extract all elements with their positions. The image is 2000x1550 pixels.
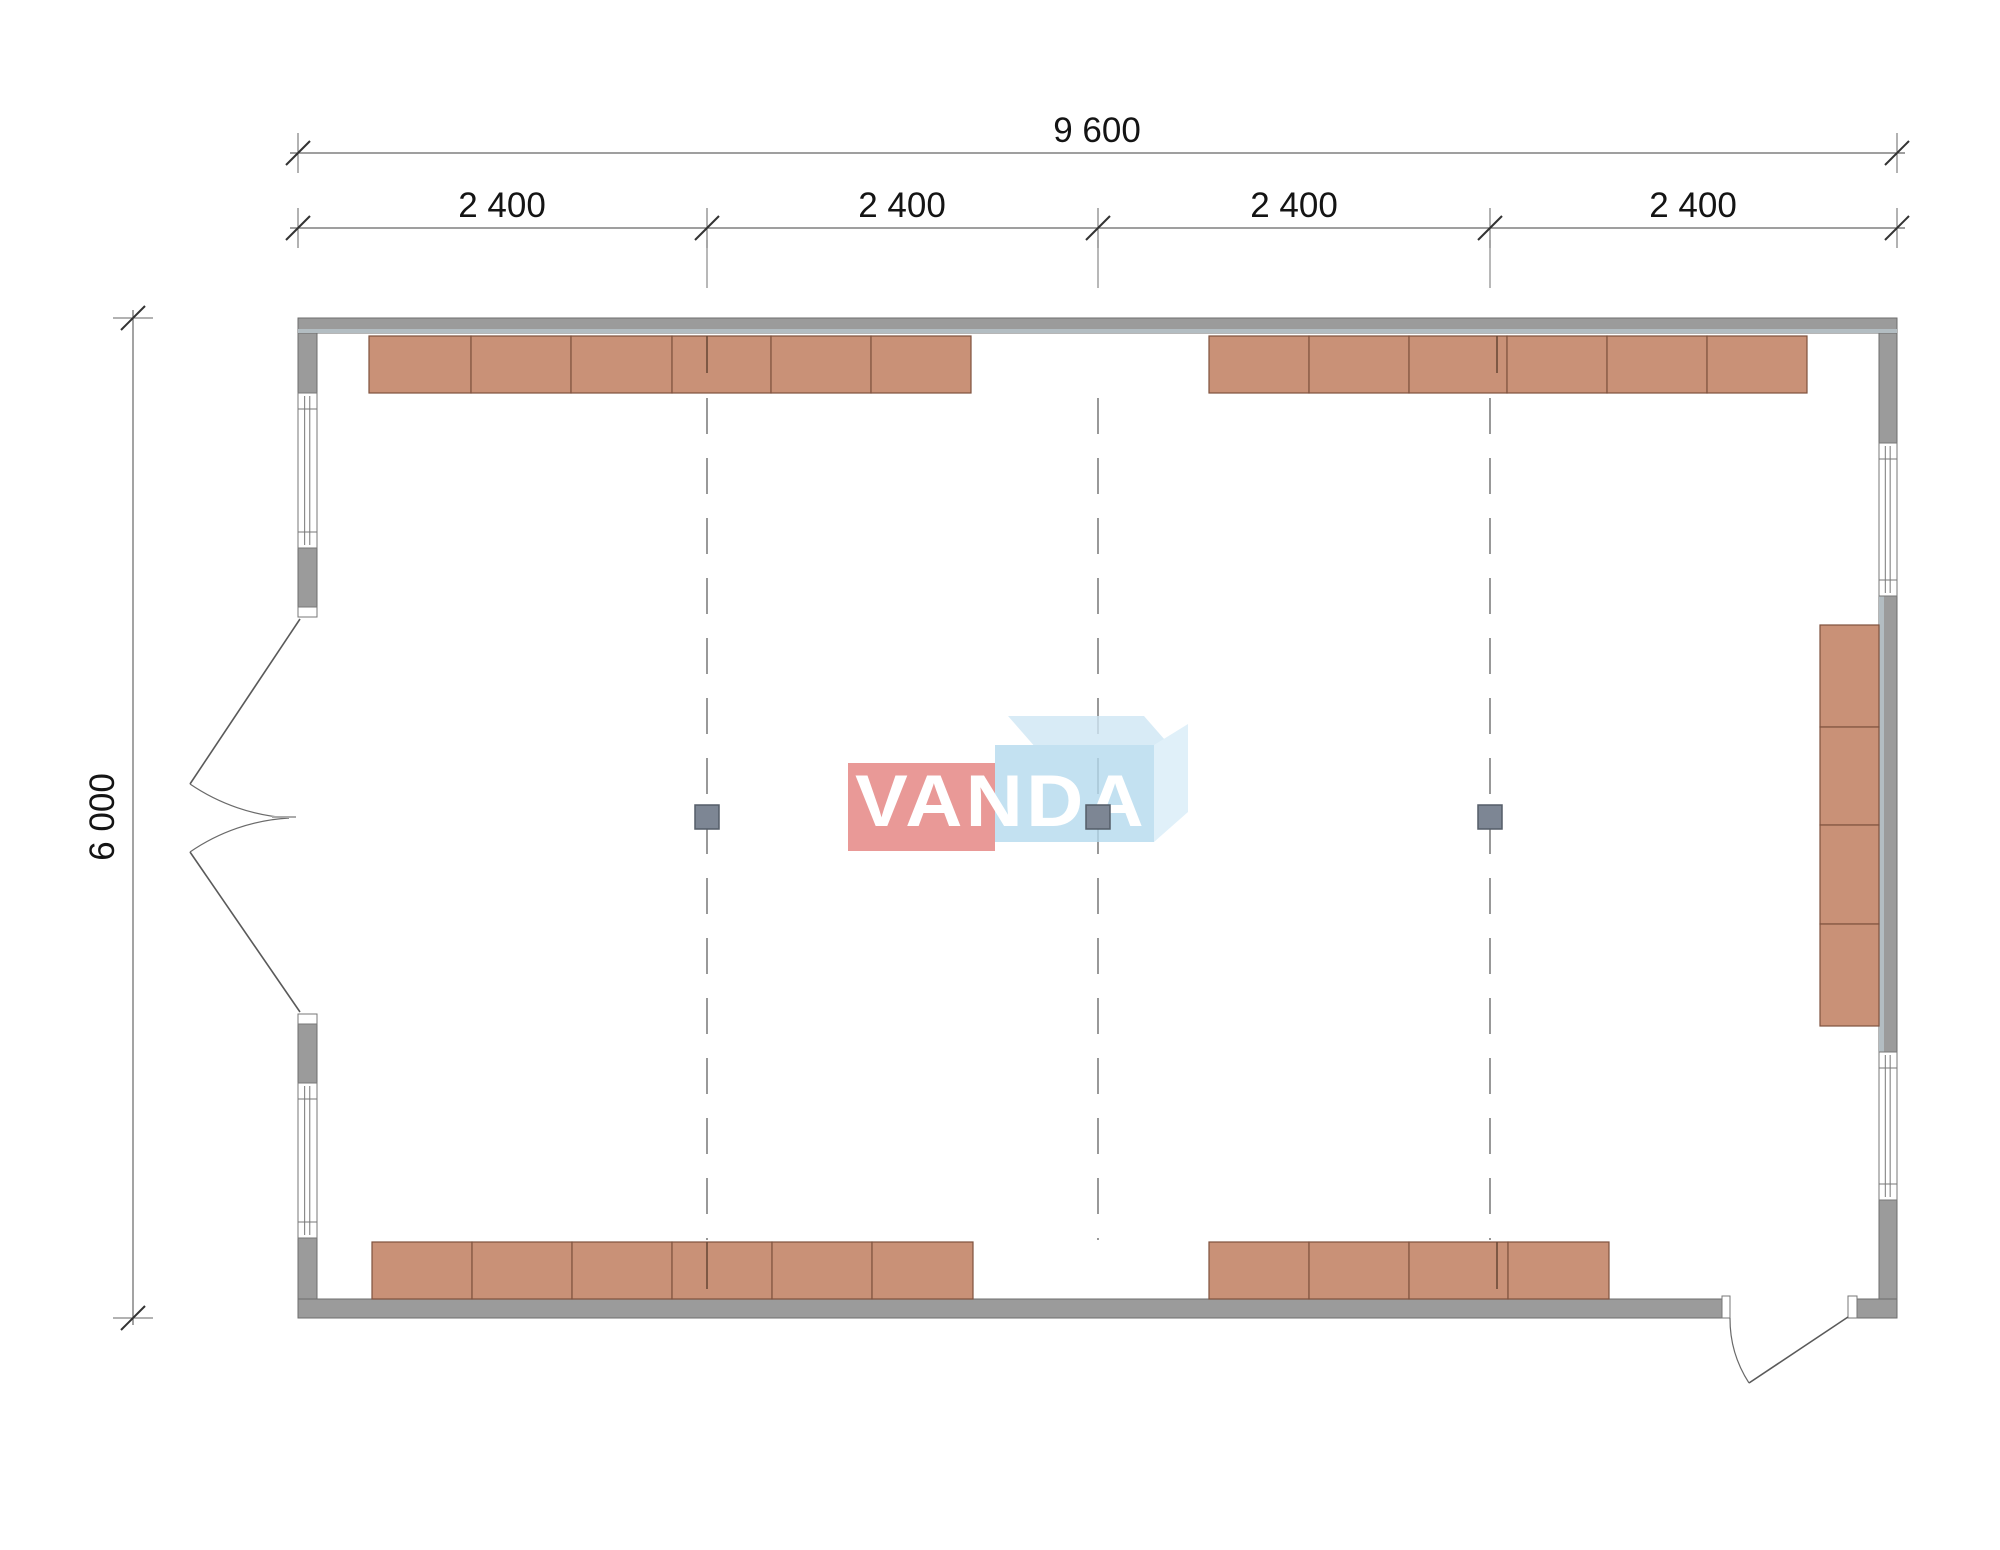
door-swing-arc bbox=[1730, 1318, 1749, 1383]
desk-block bbox=[672, 1242, 772, 1299]
wall-segment bbox=[298, 1238, 317, 1299]
desk-block bbox=[1707, 336, 1807, 393]
watermark-text: VANDA bbox=[855, 761, 1147, 842]
desk-block bbox=[872, 1242, 973, 1299]
dim-label-bay-3: 2 400 bbox=[1250, 186, 1338, 225]
floor-plan: VANDA 9 600 2 400 2 400 2 400 2 400 6 00… bbox=[0, 0, 2000, 1550]
desk-block bbox=[571, 336, 672, 393]
dim-label-height: 6 000 bbox=[83, 773, 122, 861]
desk-block bbox=[672, 336, 771, 393]
desk-block bbox=[1820, 727, 1879, 825]
desk-block bbox=[472, 1242, 572, 1299]
dimension-labels: 9 600 2 400 2 400 2 400 2 400 6 000 bbox=[83, 111, 1737, 861]
window bbox=[1879, 443, 1897, 596]
window bbox=[298, 393, 317, 548]
door-leaf bbox=[190, 619, 300, 784]
desk-block bbox=[1507, 336, 1607, 393]
desk-block bbox=[1820, 825, 1879, 924]
desk-block bbox=[369, 336, 471, 393]
desk-block bbox=[1820, 924, 1879, 1026]
wall-segment bbox=[298, 1299, 1722, 1318]
dim-label-bay-1: 2 400 bbox=[458, 186, 546, 225]
wall-segment bbox=[1879, 333, 1897, 443]
watermark-top-slab bbox=[1008, 716, 1172, 748]
window-frame bbox=[1879, 1052, 1897, 1200]
dim-label-bay-4: 2 400 bbox=[1649, 186, 1737, 225]
door-jamb bbox=[1848, 1296, 1857, 1318]
door-leaf bbox=[1749, 1317, 1848, 1383]
desk-block bbox=[871, 336, 971, 393]
vanda-watermark: VANDA bbox=[848, 716, 1188, 851]
column bbox=[1478, 805, 1502, 829]
door-jamb bbox=[298, 1014, 317, 1024]
window bbox=[1879, 1052, 1897, 1200]
door-jamb bbox=[1722, 1296, 1730, 1318]
column bbox=[1086, 805, 1110, 829]
desk-block bbox=[1409, 336, 1507, 393]
door-leaf bbox=[190, 852, 300, 1012]
desk-block bbox=[1820, 625, 1879, 727]
desk-block bbox=[772, 1242, 872, 1299]
desk-block bbox=[1209, 1242, 1309, 1299]
window-frame bbox=[298, 1083, 317, 1238]
desk-block bbox=[1209, 336, 1309, 393]
wall-segment bbox=[1857, 1299, 1897, 1318]
desk-block bbox=[1508, 1242, 1609, 1299]
desk-block bbox=[572, 1242, 672, 1299]
door-swing-arc bbox=[190, 784, 289, 818]
desk-block bbox=[372, 1242, 472, 1299]
window-frame bbox=[298, 393, 317, 548]
desk-block bbox=[471, 336, 571, 393]
desk-block bbox=[1309, 1242, 1409, 1299]
desk-block bbox=[1409, 1242, 1508, 1299]
desk-block bbox=[1309, 336, 1409, 393]
desk-block bbox=[1607, 336, 1707, 393]
window-frame bbox=[1879, 443, 1897, 596]
window bbox=[298, 1083, 317, 1238]
wall-stripe bbox=[298, 329, 1897, 333]
dim-label-bay-2: 2 400 bbox=[858, 186, 946, 225]
wall-segment bbox=[298, 548, 317, 607]
wall-segment bbox=[298, 333, 317, 393]
door-jamb bbox=[298, 607, 317, 617]
dim-label-total-width: 9 600 bbox=[1053, 111, 1141, 150]
floor-plan-page: VANDA 9 600 2 400 2 400 2 400 2 400 6 00… bbox=[0, 0, 2000, 1550]
wall-segment bbox=[298, 1024, 317, 1083]
door-swing-arc bbox=[190, 818, 289, 852]
column bbox=[695, 805, 719, 829]
wall-segment bbox=[1879, 1200, 1897, 1299]
desk-block bbox=[771, 336, 871, 393]
wall-stripe bbox=[1879, 596, 1884, 1052]
